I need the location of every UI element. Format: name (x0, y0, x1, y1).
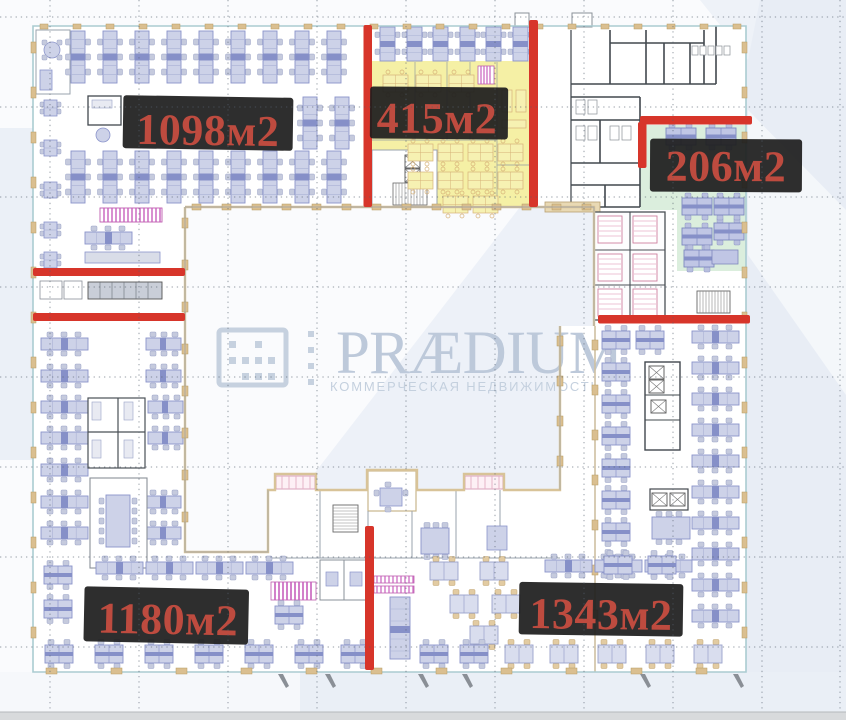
svg-text:1180м2: 1180м2 (97, 594, 239, 646)
svg-text:1343м2: 1343м2 (529, 589, 673, 640)
svg-text:206м2: 206м2 (666, 142, 787, 192)
svg-text:1098м2: 1098м2 (136, 105, 280, 156)
svg-text:415м2: 415м2 (377, 94, 498, 144)
